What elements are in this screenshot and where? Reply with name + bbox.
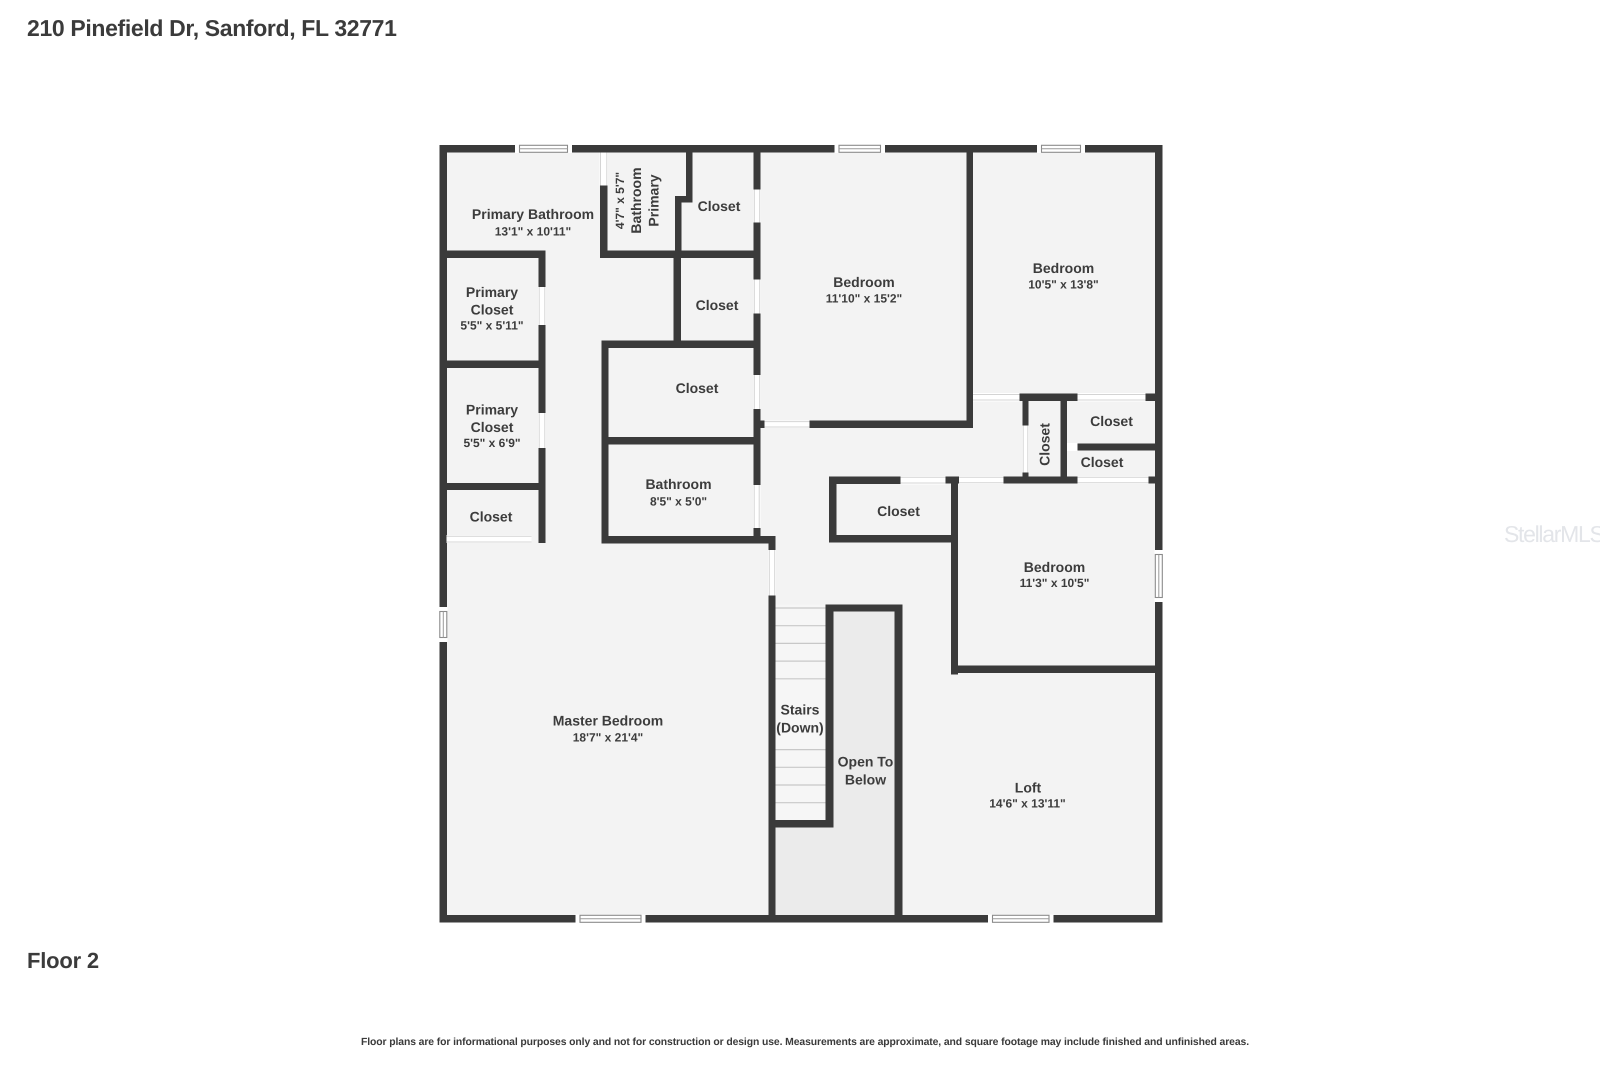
svg-text:Closet: Closet: [696, 297, 739, 313]
svg-text:Loft: Loft: [1015, 780, 1042, 796]
svg-text:Bedroom: Bedroom: [833, 274, 894, 290]
svg-text:Floor 2: Floor 2: [27, 948, 99, 973]
svg-text:Closet: Closet: [698, 198, 741, 214]
svg-text:Master Bedroom: Master Bedroom: [553, 713, 663, 729]
svg-text:StellarMLS: StellarMLS: [1504, 521, 1600, 547]
svg-text:18'7" x 21'4": 18'7" x 21'4": [573, 731, 643, 745]
svg-text:Primary Bathroom: Primary Bathroom: [472, 206, 594, 222]
svg-text:Open To: Open To: [838, 754, 894, 770]
svg-text:Primary: Primary: [466, 284, 518, 300]
svg-text:Closet: Closet: [1081, 454, 1124, 470]
svg-text:4'7" x 5'7": 4'7" x 5'7": [613, 172, 627, 229]
svg-text:14'6" x 13'11": 14'6" x 13'11": [989, 797, 1065, 811]
svg-text:Primary: Primary: [466, 402, 518, 418]
svg-text:11'3" x 10'5": 11'3" x 10'5": [1020, 576, 1090, 590]
svg-text:Closet: Closet: [877, 503, 920, 519]
svg-text:Bathroom: Bathroom: [645, 476, 711, 492]
svg-text:Closet: Closet: [1037, 423, 1053, 466]
svg-text:Closet: Closet: [471, 419, 514, 435]
svg-text:Closet: Closet: [1090, 413, 1133, 429]
svg-text:Bathroom: Bathroom: [628, 167, 644, 233]
svg-text:10'5" x 13'8": 10'5" x 13'8": [1028, 278, 1098, 292]
svg-text:Primary: Primary: [646, 174, 662, 226]
svg-text:13'1" x 10'11": 13'1" x 10'11": [495, 225, 571, 239]
svg-text:11'10" x 15'2": 11'10" x 15'2": [826, 292, 902, 306]
svg-text:Bedroom: Bedroom: [1033, 260, 1094, 276]
svg-text:Bedroom: Bedroom: [1024, 559, 1085, 575]
svg-text:5'5" x 6'9": 5'5" x 6'9": [463, 436, 520, 450]
svg-text:Below: Below: [845, 772, 886, 788]
svg-text:(Down): (Down): [776, 720, 823, 736]
svg-text:210 Pinefield Dr, Sanford, FL: 210 Pinefield Dr, Sanford, FL 32771: [27, 15, 397, 41]
svg-text:Floor plans are for informatio: Floor plans are for informational purpos…: [361, 1037, 1249, 1048]
svg-text:Closet: Closet: [471, 302, 514, 318]
svg-text:Closet: Closet: [676, 380, 719, 396]
svg-text:Stairs: Stairs: [781, 702, 820, 718]
svg-text:8'5" x 5'0": 8'5" x 5'0": [650, 495, 707, 509]
svg-text:5'5" x 5'11": 5'5" x 5'11": [460, 319, 523, 333]
svg-text:Closet: Closet: [470, 509, 513, 525]
